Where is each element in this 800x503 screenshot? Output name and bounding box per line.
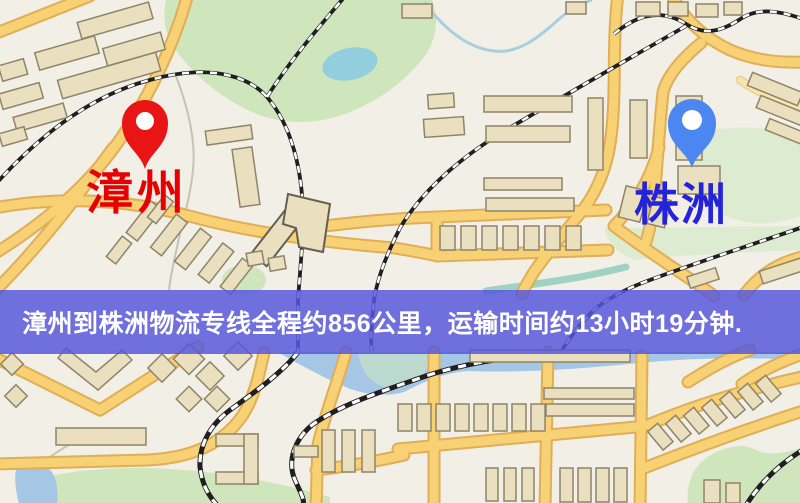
route-info-banner: 漳州到株洲物流专线全程约856公里，运输时间约13小时19分钟. [0, 290, 800, 354]
route-info-text: 漳州到株洲物流专线全程约856公里，运输时间约13小时19分钟. [22, 304, 742, 340]
map-background [0, 0, 800, 503]
destination-city-label: 株洲 [634, 182, 728, 227]
origin-city-label: 漳州 [86, 170, 188, 217]
map-image: 漳州 株洲 漳州到株洲物流专线全程约856公里，运输时间约13小时19分钟. [0, 0, 800, 503]
